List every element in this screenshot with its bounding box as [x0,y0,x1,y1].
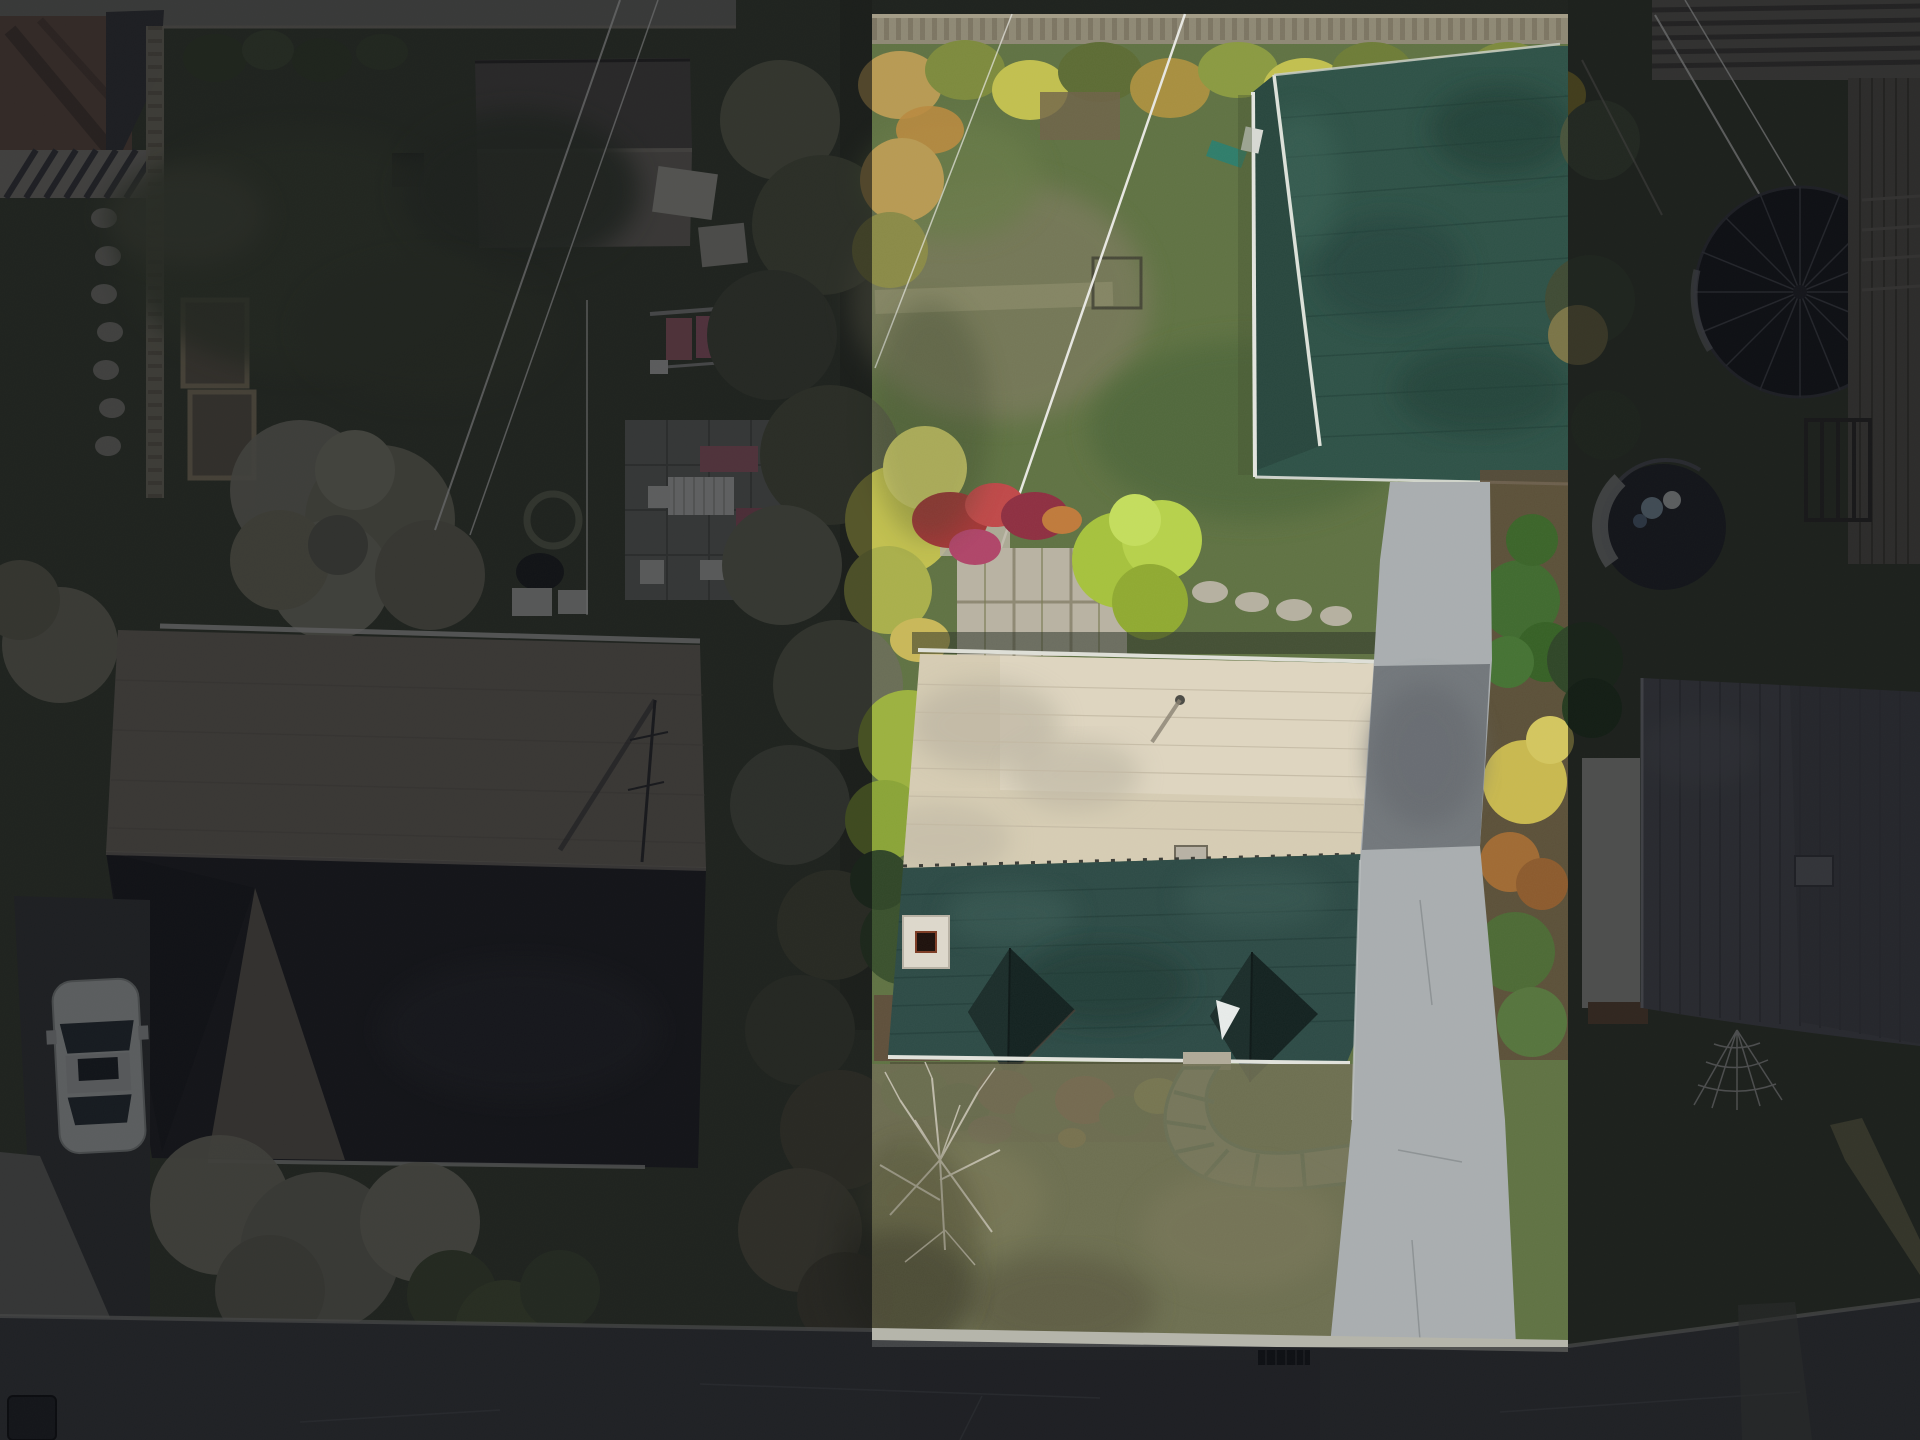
selected-parcel-highlight[interactable] [872,14,1568,1347]
aerial-photo-canvas [0,0,1920,1440]
